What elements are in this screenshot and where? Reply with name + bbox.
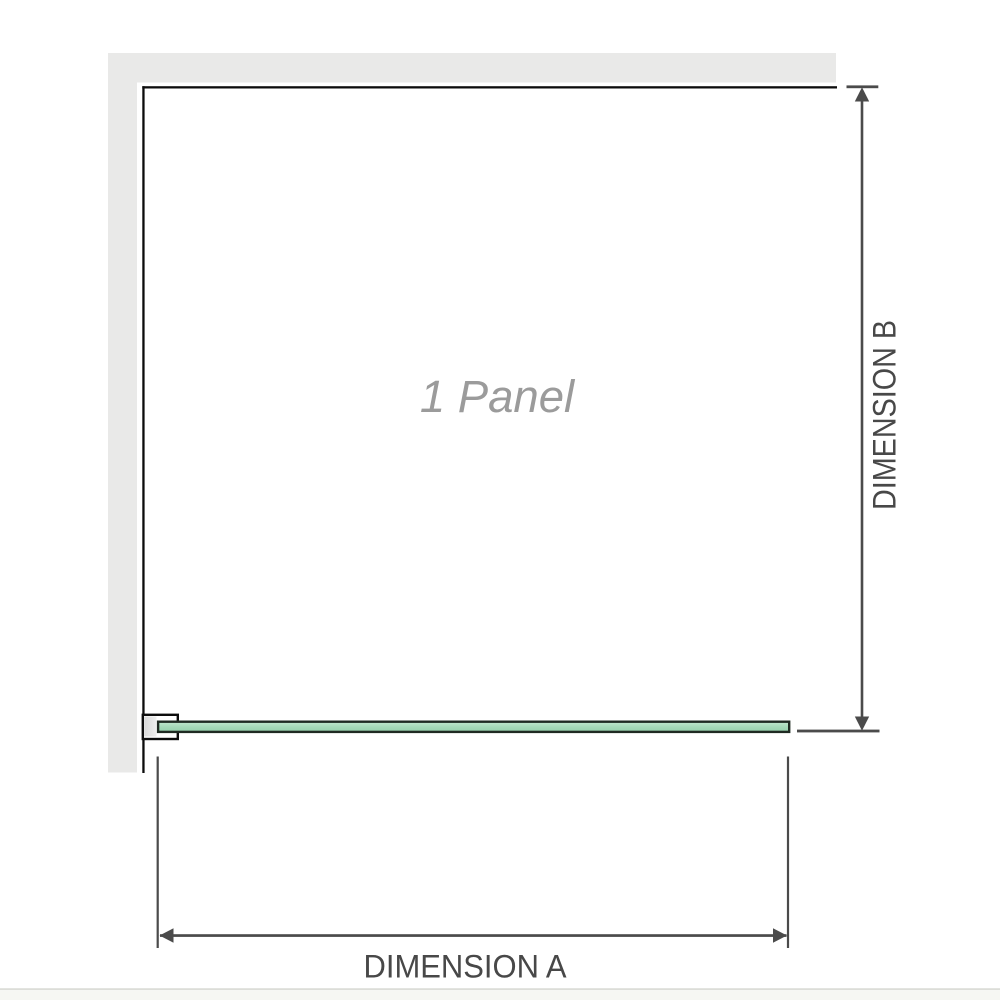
svg-text:DIMENSION A: DIMENSION A <box>364 949 568 985</box>
svg-text:DIMENSION B: DIMENSION B <box>867 320 903 510</box>
svg-text:1 Panel: 1 Panel <box>420 371 576 422</box>
